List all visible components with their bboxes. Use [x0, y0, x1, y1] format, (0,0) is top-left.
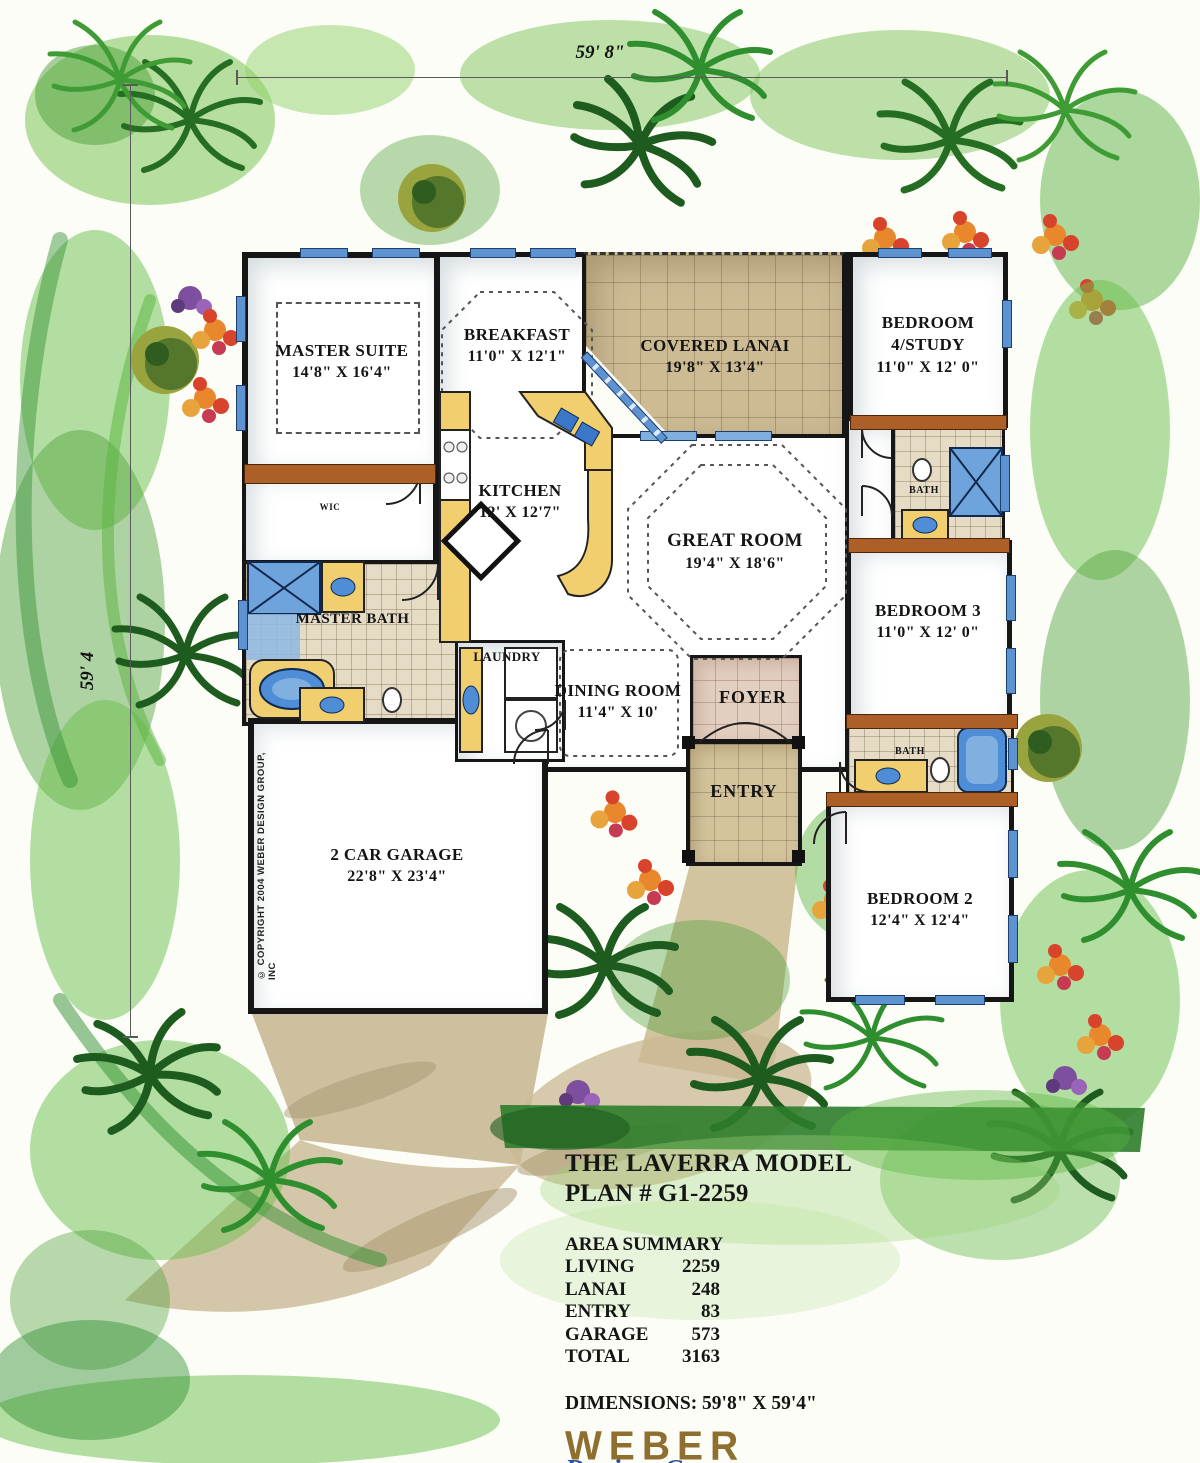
window — [236, 385, 246, 431]
dimension-tick — [236, 70, 238, 85]
label-foyer: FOYER — [703, 686, 803, 710]
label-bedroom4-study: BEDROOM 4/STUDY 11'0" X 12' 0" — [843, 312, 1013, 378]
label-master-suite: MASTER SUITE 14'8" X 16'4" — [242, 340, 442, 384]
wic-wardrobe — [244, 464, 436, 484]
title-block: THE LAVERRA MODEL PLAN # G1-2259 AREA SU… — [565, 1150, 995, 1463]
model-title: THE LAVERRA MODEL — [565, 1150, 995, 1178]
overall-dimensions: DIMENSIONS: 59'8" X 59'4" — [565, 1393, 995, 1415]
label-kitchen: KITCHEN 12' X 12'7" — [440, 480, 600, 524]
label-master-bath: MASTER BATH — [295, 610, 410, 630]
label-bedroom2: BEDROOM 2 12'4" X 12'4" — [830, 888, 1010, 932]
label-great-room: GREAT ROOM 19'4" X 18'6" — [630, 528, 840, 574]
copyright-text: © COPYRIGHT 2004 WEBER DESIGN GROUP, INC — [256, 742, 278, 980]
top-dimension-label: 59' 8" — [540, 42, 660, 64]
dimension-tick — [123, 1036, 138, 1038]
window — [470, 248, 516, 258]
area-row-lanai: LANAI 248 — [565, 1279, 720, 1302]
lower-bath-fixtures — [855, 728, 1006, 792]
label-breakfast: BREAKFAST 11'0" X 12'1" — [437, 324, 597, 368]
entry-post — [792, 736, 805, 749]
window — [1008, 830, 1018, 878]
plan-number: PLAN # G1-2259 — [565, 1180, 995, 1208]
entry-post — [792, 850, 805, 863]
window — [935, 995, 985, 1005]
top-dimension-line — [237, 77, 1007, 78]
dimension-tick — [1006, 70, 1008, 85]
logo-weber-text: WEBER — [565, 1428, 765, 1463]
foyer-arch — [700, 723, 790, 742]
window — [300, 248, 348, 258]
area-row-garage: GARAGE 573 — [565, 1324, 720, 1347]
window — [372, 248, 420, 258]
weber-design-group-logo: WEBER Design Group www.WeberDesignGroup.… — [565, 1429, 765, 1463]
window — [1000, 455, 1010, 512]
window — [1006, 648, 1016, 694]
label-dining: DINING ROOM 11'4" X 10' — [538, 680, 698, 724]
left-dimension-label: 59' 4 — [77, 631, 99, 711]
lanai-slider-window — [715, 431, 772, 441]
left-dimension-line — [130, 85, 131, 1037]
master-bath-fixtures — [246, 562, 401, 722]
lanai-slider-window — [640, 431, 697, 441]
area-row-entry: ENTRY 83 — [565, 1301, 720, 1324]
wall-header — [850, 415, 1007, 430]
label-bath-lower: BATH — [880, 745, 940, 758]
wall-header — [826, 792, 1018, 807]
floor-plan-rendering: 59' 8" 59' 4 — [0, 0, 1200, 1463]
area-summary-title: AREA SUMMARY — [565, 1234, 995, 1256]
area-row-living: LIVING 2259 — [565, 1256, 720, 1279]
entry-post — [682, 850, 695, 863]
label-garage: 2 CAR GARAGE 22'8" X 23'4" — [297, 844, 497, 888]
label-wic: WIC — [300, 502, 360, 514]
window — [236, 296, 246, 342]
wall-header — [848, 538, 1010, 553]
wall-header — [846, 714, 1018, 729]
label-covered-lanai: COVERED LANAI 19'8" X 13'4" — [605, 335, 825, 379]
window — [238, 600, 248, 650]
area-row-total: TOTAL 3163 — [565, 1346, 720, 1369]
dimension-tick — [123, 84, 138, 86]
label-entry: ENTRY — [694, 780, 794, 804]
window — [948, 248, 992, 258]
window — [530, 248, 576, 258]
window — [878, 248, 922, 258]
label-laundry: LAUNDRY — [457, 648, 557, 665]
label-bath-upper: BATH — [894, 484, 954, 497]
window — [1008, 738, 1018, 770]
window — [855, 995, 905, 1005]
entry-post — [682, 736, 695, 749]
label-bedroom3: BEDROOM 3 11'0" X 12' 0" — [848, 600, 1008, 644]
